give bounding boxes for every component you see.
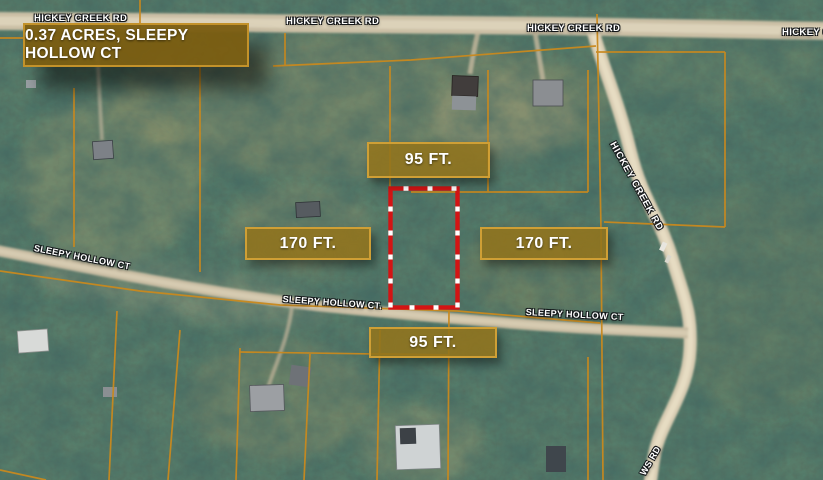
road-label-hickey-creek-rd-top-center: HICKEY CREEK RD — [286, 16, 379, 27]
road-label-hickey-creek-rd-top-edge: HICKEY CREEK RD — [782, 27, 823, 38]
road-label-hickey-creek-rd-top-right: HICKEY CREEK RD — [527, 23, 620, 34]
tree-canopy-texture — [0, 0, 823, 480]
shed-marker — [103, 387, 117, 397]
house-marker — [533, 80, 563, 106]
measurement-left: 170 FT. — [245, 227, 371, 260]
house-marker — [296, 201, 321, 217]
house-marker — [250, 384, 285, 411]
house-marker — [452, 76, 479, 97]
house-marker — [452, 96, 476, 111]
shed-marker — [26, 80, 36, 88]
satellite-background — [0, 0, 823, 480]
satellite-map — [0, 0, 823, 480]
listing-title: 0.37 ACRES, SLEEPY HOLLOW CT — [23, 23, 249, 67]
house-marker — [92, 140, 113, 159]
measurement-right: 170 FT. — [480, 227, 608, 260]
house-marker — [17, 329, 48, 353]
measurement-bottom: 95 FT. — [369, 327, 497, 358]
measurement-top: 95 FT. — [367, 142, 490, 178]
listing-map-image: HICKEY CREEK RD HICKEY CREEK RD HICKEY C… — [0, 0, 823, 480]
house-marker — [400, 428, 417, 445]
shed-marker — [546, 446, 566, 472]
